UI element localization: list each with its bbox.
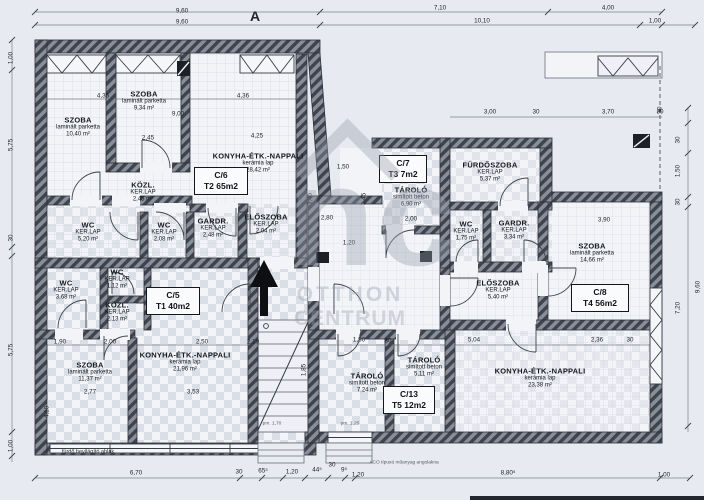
dimension-label: 30 xyxy=(532,109,539,116)
drain-note: ACO típusú műanyag angolakna xyxy=(369,461,438,466)
dimension-label: 2,77 xyxy=(84,389,96,396)
dimension-label: 8,80⁵ xyxy=(501,470,516,477)
section-marker: A xyxy=(250,8,260,24)
room-label: WCKER.LAP2,08 m² xyxy=(151,220,176,243)
dimension-label: 1,00 xyxy=(8,440,15,452)
dimension-label: 7,20 xyxy=(675,302,682,314)
room-label: ELŐSZOBAKER.LAP2,04 m² xyxy=(244,212,287,235)
dimension-label: 1,00 xyxy=(8,52,15,64)
dimension-label: 4,36 xyxy=(237,93,249,100)
dimension-label: 30 xyxy=(328,462,335,469)
room-label: TÁROLÓsimított beton6,90 m² xyxy=(393,185,429,208)
dimension-label: 2,00 xyxy=(405,216,417,223)
parapet-note: pm. 1,70 xyxy=(263,422,282,427)
unit-box: C/7T3 7m2 xyxy=(379,155,427,183)
window-note: fürdő bevilágító ablak xyxy=(62,449,114,455)
dimension-label: 1,00 xyxy=(649,18,661,25)
dimension-label: 6,70 xyxy=(130,470,142,477)
dimension-label: 1,00 xyxy=(658,472,670,479)
dimension-label: 2,10 xyxy=(247,339,259,346)
dimension-label: 9,60 xyxy=(695,281,702,293)
unit-box: C/5T1 40m2 xyxy=(146,287,200,315)
room-label: SZOBAlaminált parketta14,66 m² xyxy=(570,241,614,264)
scan-edge-artifact xyxy=(470,496,704,500)
room-label: SZOBAlaminált parketta10,40 m² xyxy=(56,115,100,138)
dimension-label: 1,20 xyxy=(343,240,355,247)
dimension-label: 3,00 xyxy=(484,109,496,116)
room-label: KONYHA-ÉTK.-NAPPALIkerámia lap21,96 m² xyxy=(140,350,231,373)
dimension-label: 1,85 xyxy=(301,364,308,376)
dimension-label: 30 xyxy=(8,234,15,241)
unit-box: C/8T4 56m2 xyxy=(571,284,629,312)
dimension-label: 10,10 xyxy=(474,18,490,25)
dimension-label: 1,50 xyxy=(337,164,349,171)
parapet-note: pm. 1,25 xyxy=(341,422,360,427)
dimension-label: 4,00 xyxy=(602,5,614,12)
dimension-label: 3,70 xyxy=(602,109,614,116)
dimension-label: 5,75 xyxy=(8,139,15,151)
dimension-label: 2,45 xyxy=(142,135,154,142)
room-label: FÜRDŐSZOBAKER.LAP5,37 m² xyxy=(463,160,518,183)
unit-box: C/13T5 12m2 xyxy=(383,386,435,414)
dimension-label: 4,35 xyxy=(97,93,109,100)
room-label: KÖZL.KER.LAP2,13 m² xyxy=(104,300,129,323)
dimension-label: 9,60 xyxy=(176,19,188,26)
dimension-label: 7,10 xyxy=(434,5,446,12)
dimension-label: 2,50 xyxy=(196,339,208,346)
dimension-label: 1,80 xyxy=(353,337,365,344)
dimension-label: 1,20 xyxy=(286,469,298,476)
room-label: WCKER.LAP3,68 m² xyxy=(53,278,78,301)
dimension-label: 4,10 xyxy=(44,406,51,418)
dimension-label: 30 xyxy=(675,198,682,205)
unit-box: C/6T2 65m2 xyxy=(194,167,248,195)
room-label: SZOBAlaminált parketta11,37 m² xyxy=(68,360,112,383)
dimension-label: 30 xyxy=(384,338,391,345)
dimension-label: 2,36 xyxy=(591,337,603,344)
dimension-label: 5,04 xyxy=(468,337,480,344)
dimension-label: 30 xyxy=(235,469,242,476)
room-label: ELŐSZOBAKER.LAP5,40 m² xyxy=(476,278,519,301)
dimension-label: 30 xyxy=(656,109,663,116)
dimension-label: 30 xyxy=(626,337,633,344)
dimension-label: 3,90 xyxy=(598,217,610,224)
dimension-label: 3,45 xyxy=(307,193,314,205)
room-label: WCKER.LAP1,75 m² xyxy=(453,219,478,242)
room-label: KONYHA-ÉTK.-NAPPALIkerámia lap23,38 m² xyxy=(495,366,586,389)
dimension-label: 30 xyxy=(675,136,682,143)
dimension-label: 9,60 xyxy=(176,8,188,15)
dimension-label: 2,00 xyxy=(104,339,116,346)
dimension-label: 3,45 xyxy=(361,193,368,205)
dimension-label: 9,00 xyxy=(172,111,184,118)
dimension-label: 4,25 xyxy=(251,133,263,140)
room-label: WCKER.LAP1,12 m² xyxy=(104,267,129,290)
room-label: SZOBAlaminált parketta9,34 m² xyxy=(122,89,166,112)
dimension-label: 1,50 xyxy=(675,165,682,177)
room-label: GARDR.KER.LAP3,34 m² xyxy=(499,218,530,241)
floor-plan-page: nc OTTHON CENTRUM A SZOBAlaminált parket… xyxy=(0,0,704,500)
dimension-label: 2,80 xyxy=(321,215,333,222)
room-label: TÁROLÓsimított beton7,24 m² xyxy=(349,371,385,394)
dimension-label: 5,75 xyxy=(8,344,15,356)
room-label: WCKER.LAP5,20 m² xyxy=(75,220,100,243)
room-label: TÁROLÓsimított beton5,11 m² xyxy=(406,355,442,378)
dimension-label: 9⁵ xyxy=(341,467,347,474)
room-label: GARDR.KER.LAP2,48 m² xyxy=(198,216,229,239)
dimension-label: 3,53 xyxy=(187,389,199,396)
dimension-label: 1,20 xyxy=(352,472,364,479)
dimension-label: 65⁵ xyxy=(258,468,268,475)
dimension-label: 1,90 xyxy=(54,339,66,346)
room-label: KÖZL.KER.LAP2,45 m² xyxy=(130,180,155,203)
dimension-label: 44⁵ xyxy=(312,467,322,474)
